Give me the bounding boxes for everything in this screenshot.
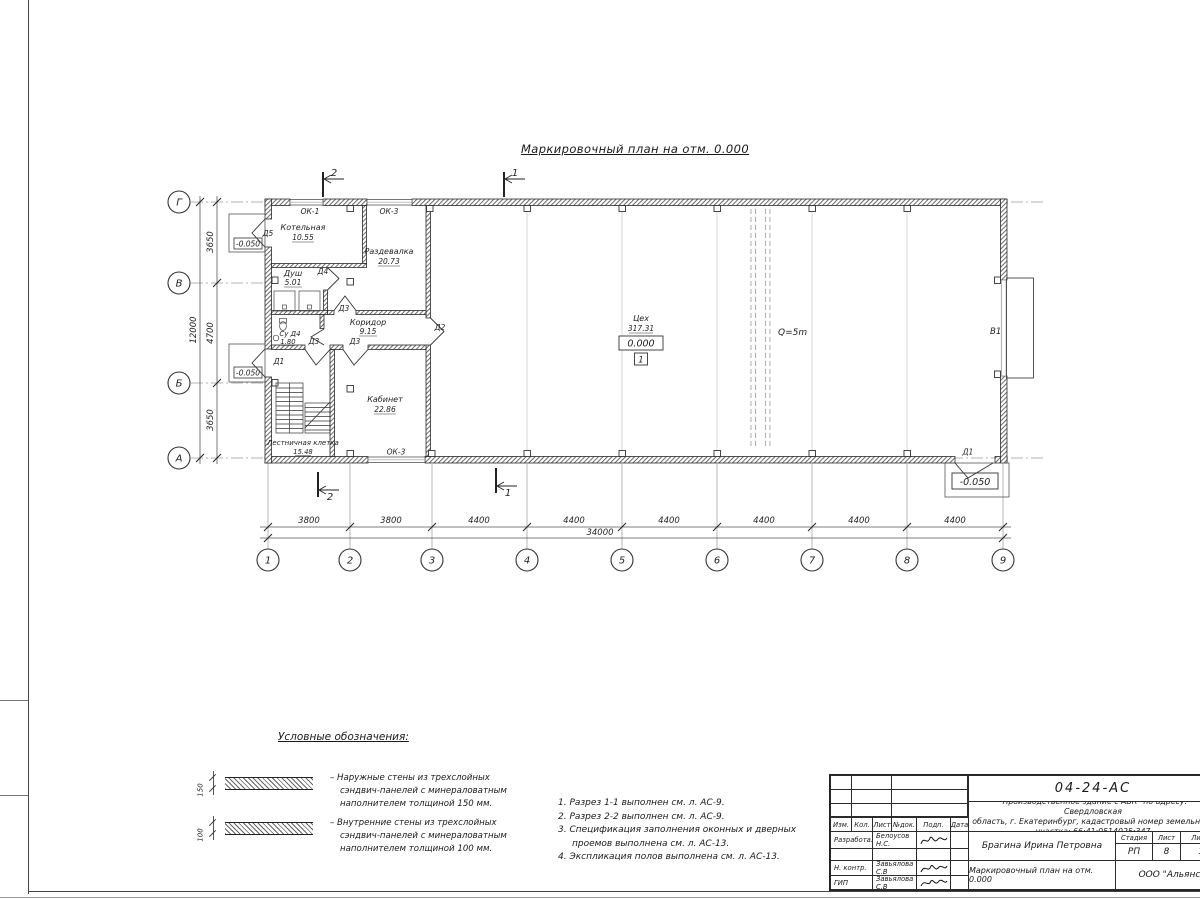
legend-line: наполнителем толщиной 100 мм. [330,843,507,856]
room-area: 9.15 [360,327,377,336]
wall-segment [330,345,343,350]
column-mark [347,206,354,212]
role-label: Н. контр. [830,860,873,876]
dim-value: 4400 [848,516,870,526]
wall-segment [328,311,335,315]
column-mark [272,277,278,284]
level-value: -0.050 [236,369,260,378]
stair-treads [305,408,330,431]
dim-value: 3800 [298,516,320,526]
section-number: 1 [505,488,511,499]
window-label: ОК-3 [387,448,406,457]
grid-lines-workshop [527,206,907,456]
role-label: ГИП [830,875,873,890]
door-label: Д2 [434,323,446,332]
column-mark [347,386,354,393]
sheet-edge-line [0,897,1200,898]
section-number: 2 [327,492,333,503]
level-value: -0.050 [236,240,260,249]
note-line: проемов выполнена см. л. АС-13. [558,838,796,852]
axis-bubbles-bottom: 1 2 3 4 5 6 7 8 9 [257,549,1014,571]
rev-header-izm: Изм. [830,817,852,832]
legend-line: сэндвич-панелей с минераловатным [330,830,507,843]
column-mark [347,279,354,286]
door-leaf-d4 [328,268,340,291]
sheets-value: 13 [1180,843,1200,861]
room-name: Су Д4 [279,330,300,338]
axis-label: 6 [714,556,720,567]
wall-segment [265,199,272,219]
shower-drain [308,305,312,309]
signature-cell [916,875,951,890]
role-name: Завьялова С.В [872,860,917,876]
signature-stroke [921,865,947,872]
wall-segment [265,247,272,349]
signature-stroke [921,880,947,886]
legend-item-text: – Наружные стены из трехслойных сэндвич-… [330,772,507,811]
door-label: Д3 [338,304,350,313]
floor-plan-canvas: 3800 3800 4400 4400 4400 4400 4400 4400 … [0,0,1200,620]
crane-capacity-label: Q=5m [778,328,807,338]
wall-segment [1001,376,1008,463]
dim-total: 12000 [189,316,199,343]
dim-value: 4400 [753,516,775,526]
gate-label: В1 [990,327,1001,337]
axis-label: В [176,279,183,290]
shower-drain [283,305,287,309]
axis-label: Б [176,379,183,390]
sink [273,335,279,341]
sheet-value: 8 [1152,843,1181,861]
dim-value: 3650 [206,409,216,431]
column-mark [524,451,531,457]
project-description-cell: "Производственное здание с АБК" по адрес… [968,801,1200,832]
door-label: Д4 [317,267,329,276]
axis-label: А [175,454,183,465]
legend-thickness: 150 [197,783,205,796]
rev-header-data: Дата [950,817,969,832]
column-mark [429,451,436,457]
shower-stall [299,291,320,311]
signature [919,877,949,889]
role-name: Завьялова С.В [872,875,917,890]
rev-header-podp: Подп. [916,817,951,832]
axis-label: 9 [1000,556,1006,567]
room-name: Лестничная клетка [266,439,339,447]
legend-swatch-external-wall [225,777,313,790]
column-mark [347,451,354,457]
binding-mark-bottom [0,795,28,796]
dimension-texts: 3800 3800 4400 4400 4400 4400 4400 4400 … [189,231,966,538]
signature [919,833,949,847]
dim-value: 4700 [206,322,216,344]
drawing-sheet: Маркировочный план на отм. 0.000 [0,0,1200,900]
legend-line: – Наружные стены из трехслойных [330,772,507,785]
legend-item-text: – Внутренние стены из трехслойных сэндви… [330,817,507,856]
dim-value: 3800 [380,516,402,526]
room-area: 1.80 [280,338,295,346]
door-leaf-d3 [343,350,368,366]
window-label: ОК-1 [301,207,320,216]
axis-lines [191,202,1045,458]
wall-segment [324,290,328,311]
project-line: "Производственное здание с АБК" по адрес… [969,801,1200,817]
gate-leaf-b1 [1007,278,1034,378]
axis-label: 7 [809,556,816,567]
legend-line: сэндвич-панелей с минераловатным [330,785,507,798]
section-number: 2 [331,168,337,179]
drawing-title-cell: Маркировочный план на отм. 0.000 [968,860,1116,890]
door-label: Д1 [962,448,974,457]
door-label: Д1 [273,357,285,366]
legend-thickness: 100 [197,828,205,841]
note-line: 3. Спецификация заполнения оконных и две… [558,824,796,838]
wall-segment [412,199,1007,206]
window-label: ОК-3 [380,207,399,216]
dim-value: 4400 [563,516,585,526]
axis-label: 1 [265,556,271,567]
column-mark [619,206,626,212]
dim-value: 4400 [944,516,966,526]
floor-mark-value: 1 [638,356,643,366]
column-mark [904,451,911,457]
wall-segment [356,311,426,315]
room-name: Кабинет [367,395,403,404]
wall-segment [426,345,431,457]
axis-label: 5 [619,556,625,567]
axis-label: 3 [429,556,435,567]
rev-header-list: Лист [872,817,892,832]
room-area: 5.01 [285,278,302,287]
column-mark [809,451,816,457]
note-line: 2. Разрез 2-2 выполнен см. л. АС-9. [558,811,796,825]
signature-cell [916,860,951,876]
section-number: 1 [512,168,518,179]
legend-swatch-internal-wall [225,822,313,835]
axis-label: 8 [904,556,910,567]
column-mark [619,451,626,457]
room-name: Раздевалка [365,247,414,256]
wall-segment [265,457,368,464]
wall-segment [368,345,426,350]
level-value: -0.050 [960,477,991,488]
room-area: 20.73 [378,257,400,266]
door-label: Д3 [308,337,320,346]
wall-segment [320,315,324,329]
room-area: 317.31 [628,324,654,333]
project-line: область, г. Екатеринбург, кадастровый но… [972,817,1200,827]
workshop-marks: 0.000 1 Q=5m [619,328,807,366]
room-name: Цех [633,314,649,323]
toilet-tank [280,319,287,324]
room-name: Душ [283,269,303,278]
organization-cell: ООО "Альянс" [1115,860,1200,890]
level-value: 0.000 [627,339,654,350]
room-name: Котельная [281,223,326,232]
legend-line: – Внутренние стены из трехслойных [330,817,507,830]
column-mark [995,277,1001,284]
dimension-lines [200,196,1011,538]
note-line: 4. Экспликация полов выполнена см. л. АС… [558,851,796,865]
stair-break-line [305,402,330,428]
column-mark [427,206,434,212]
binding-mark-top [0,700,28,701]
windows [290,200,1034,463]
axis-label: 2 [347,556,353,567]
frame-bottom-line [28,891,1200,892]
dim-value: 3650 [206,231,216,253]
stage-value: РП [1115,843,1153,861]
room-name: Коридор [350,318,386,327]
shower-stall [274,291,295,311]
column-mark [714,451,721,457]
door-leaf-d3 [305,350,330,366]
legend-title: Условные обозначения: [278,731,409,743]
column-mark [714,206,721,212]
doc-number-cell: 04-24-АС [968,775,1200,802]
note-line: 1. Разрез 1-1 выполнен см. л. АС-9. [558,797,796,811]
dim-value: 4400 [658,516,680,526]
signature-stroke [921,837,947,844]
column-mark [995,371,1001,378]
crane-runway-lines [751,209,770,449]
rev-header-kol: Кол. [851,817,873,832]
signature [919,862,949,875]
client-cell: Брагина Ирина Петровна [968,831,1116,861]
column-mark [809,206,816,212]
extension-lines [268,464,1003,549]
staircase [276,383,330,433]
wall-segment [425,457,955,464]
wall-segment [323,199,367,206]
room-area: 15.48 [293,448,313,456]
room-area: 22.86 [374,405,396,414]
role-name: Белоусов Н.С. [872,831,917,849]
dim-total: 34000 [586,528,613,538]
rev-header-ndok: №док. [891,817,917,832]
axis-bubbles-left: Г В Б А [168,191,190,469]
wall-segment [265,377,272,463]
door-label: Д5 [262,229,274,238]
column-mark [904,206,911,212]
date-cell [950,875,969,890]
dim-value: 4400 [468,516,490,526]
legend-line: наполнителем толщиной 150 мм. [330,798,507,811]
wall-segment [1001,199,1008,280]
signature-cell [916,831,951,849]
axis-label: 4 [524,556,530,567]
notes-list: 1. Разрез 1-1 выполнен см. л. АС-9. 2. Р… [558,797,796,865]
date-cell [950,831,969,849]
room-area: 10.55 [292,233,314,242]
role-label: Разработал [830,831,873,849]
column-mark [524,206,531,212]
gate-opening [1001,280,1006,376]
date-cell [950,860,969,876]
door-label: Д3 [349,337,361,346]
wall-segment [426,206,431,319]
